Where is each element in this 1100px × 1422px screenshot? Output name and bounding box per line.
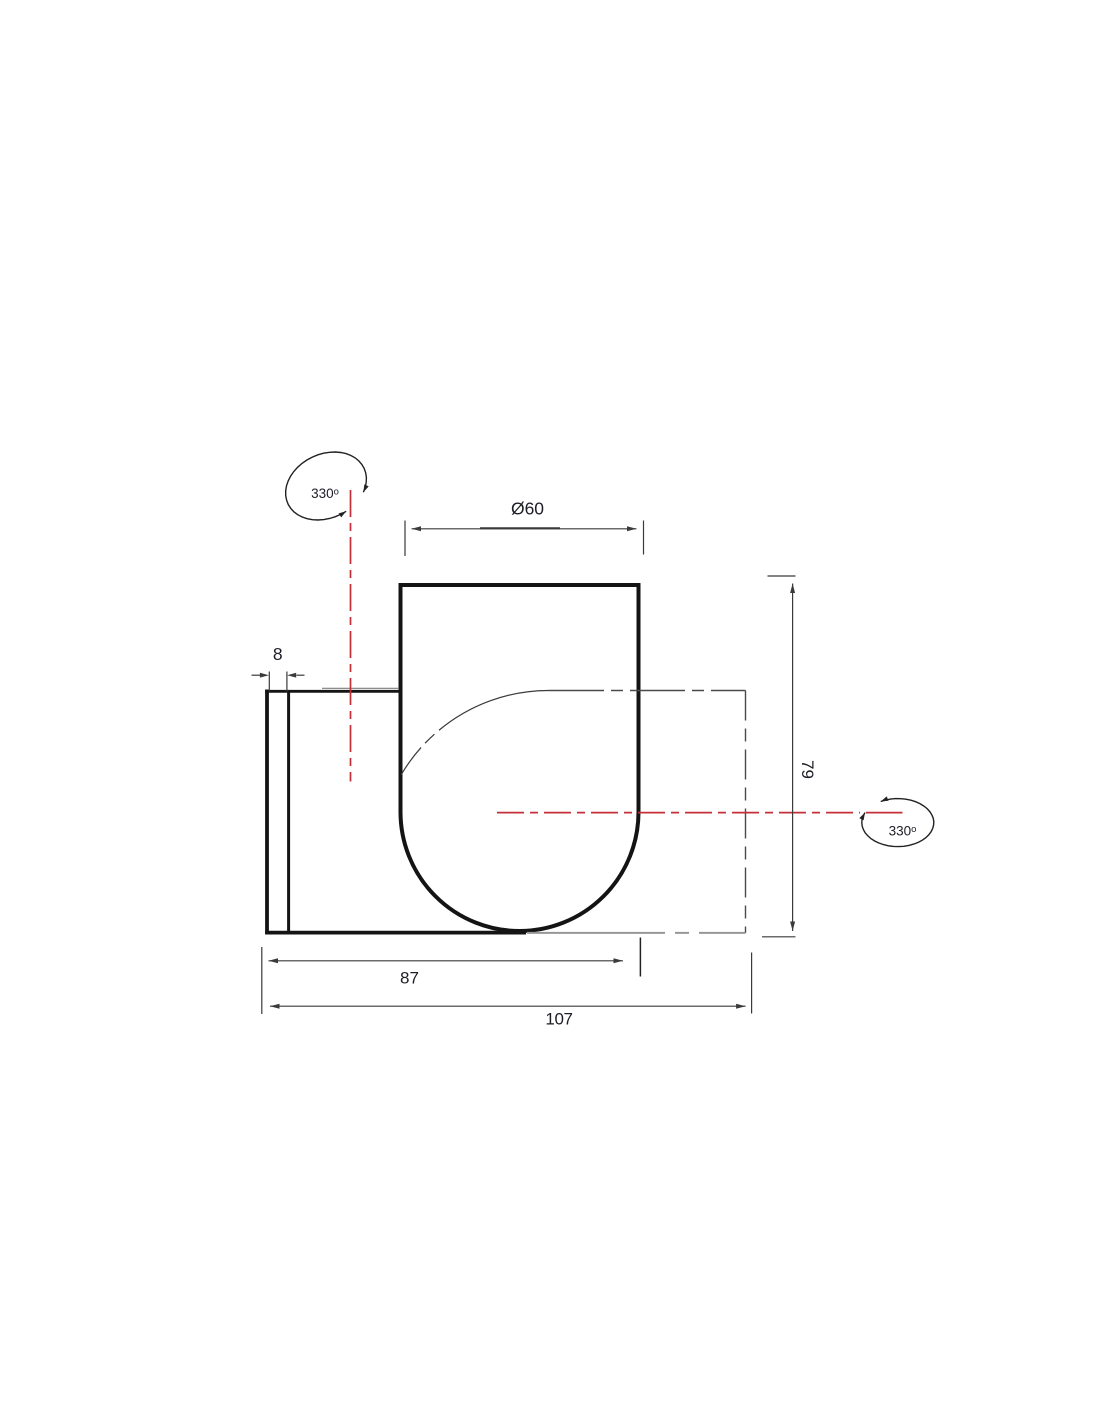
svg-text:8: 8 xyxy=(273,644,283,664)
svg-text:107: 107 xyxy=(545,1010,572,1029)
svg-text:79: 79 xyxy=(798,760,817,779)
svg-text:Ø60: Ø60 xyxy=(511,499,544,519)
svg-text:87: 87 xyxy=(400,969,419,988)
